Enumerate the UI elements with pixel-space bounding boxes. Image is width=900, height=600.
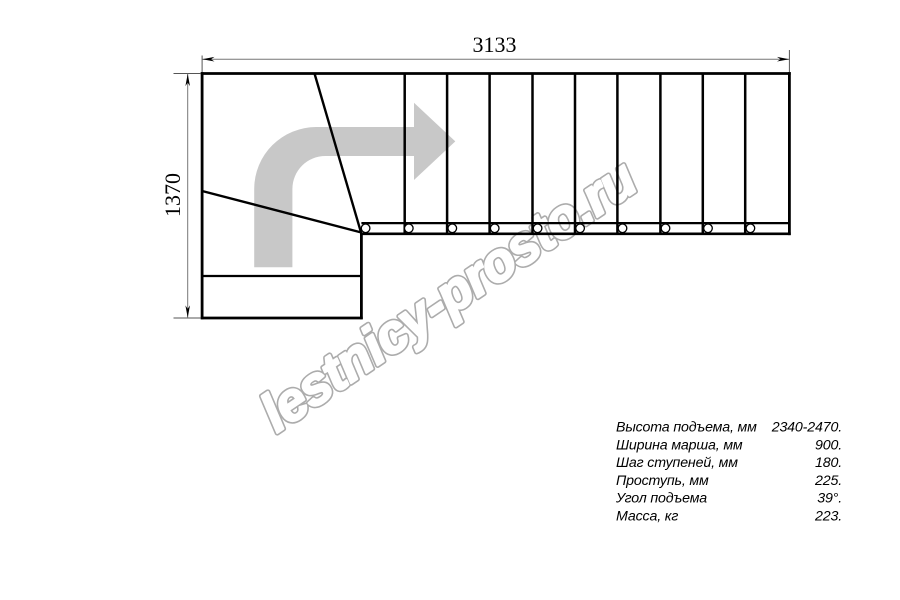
svg-text:900.: 900. bbox=[815, 437, 842, 453]
svg-text:225.: 225. bbox=[814, 473, 842, 489]
svg-text:1370: 1370 bbox=[160, 173, 185, 217]
svg-text:Ширина марша, мм: Ширина марша, мм bbox=[616, 437, 743, 453]
svg-text:Высота подъема, мм: Высота подъема, мм bbox=[616, 420, 757, 436]
svg-text:lestnicy-prosto.ru: lestnicy-prosto.ru bbox=[250, 148, 648, 443]
svg-text:223.: 223. bbox=[814, 509, 842, 525]
svg-text:Угол подъема: Угол подъема bbox=[615, 491, 707, 507]
svg-text:180.: 180. bbox=[815, 455, 842, 471]
svg-text:Шаг ступеней, мм: Шаг ступеней, мм bbox=[616, 455, 738, 471]
svg-text:Масса, кг: Масса, кг bbox=[616, 509, 678, 525]
svg-text:2340-2470.: 2340-2470. bbox=[771, 420, 842, 436]
svg-text:3133: 3133 bbox=[473, 32, 517, 57]
svg-text:Проступь, мм: Проступь, мм bbox=[616, 473, 709, 489]
svg-text:39°.: 39°. bbox=[817, 491, 842, 507]
